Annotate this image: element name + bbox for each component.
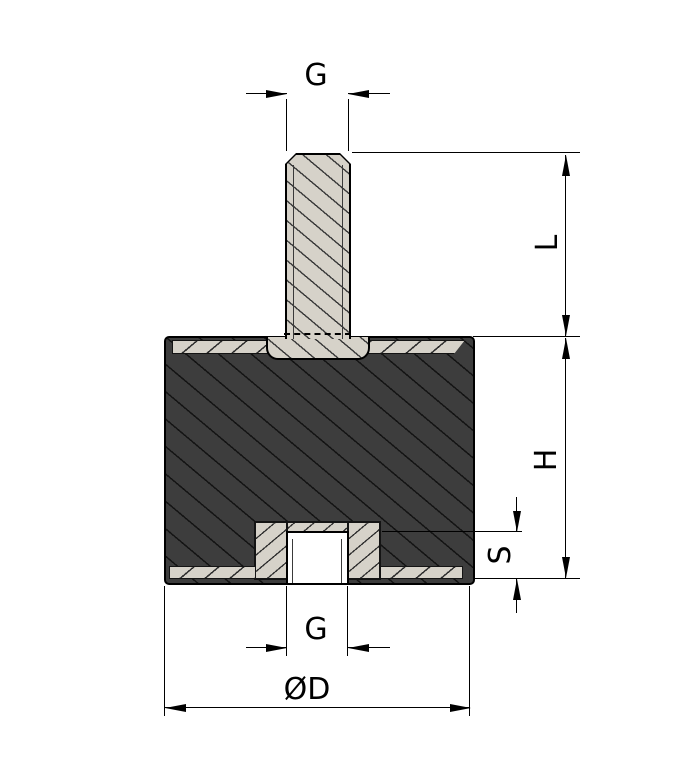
dimension-line: [165, 707, 470, 708]
hole-thread-minor-line-left: [292, 539, 293, 583]
arrowhead: [562, 155, 570, 176]
dimension-line: [565, 338, 566, 578]
stud-thread-minor-line-right: [342, 165, 343, 339]
bottom-plate-left: [169, 566, 256, 579]
arrowhead: [348, 644, 369, 652]
stud-thread-minor-line-left: [293, 165, 294, 339]
extension-line: [469, 586, 470, 716]
dimension-label-outer-diameter: ØD: [284, 675, 331, 705]
arrowhead: [165, 704, 186, 712]
dimension-line: [565, 155, 566, 336]
hole-thread-minor-line-right: [341, 539, 342, 583]
arrowhead: [562, 338, 570, 359]
stud-body-fill: [287, 155, 349, 339]
arrowhead: [266, 90, 287, 98]
extension-line: [473, 578, 580, 579]
dimension-label-body-height: H: [532, 449, 562, 472]
dimension-label-hole-thread: G: [304, 615, 327, 645]
insert-right-leg: [347, 521, 381, 580]
extension-line: [473, 336, 580, 337]
extension-line: [382, 531, 522, 532]
insert-left-leg: [254, 521, 288, 580]
arrowhead: [562, 315, 570, 336]
dimension-label-stud-thread: G: [304, 61, 327, 91]
stud-foot: [266, 337, 370, 360]
arrowhead: [562, 557, 570, 578]
arrowhead: [266, 644, 287, 652]
hidden-edge-dashed-line: [284, 333, 351, 335]
extension-line: [286, 99, 287, 151]
dimension-label-stud-length: L: [533, 235, 563, 252]
threaded-stud: [285, 153, 351, 339]
extension-line: [348, 99, 349, 151]
bottom-plate-right: [380, 566, 463, 579]
extension-line: [164, 586, 165, 716]
arrowhead: [513, 579, 521, 600]
arrowhead: [513, 511, 521, 532]
arrowhead: [348, 90, 369, 98]
extension-line: [352, 152, 580, 153]
arrowhead: [450, 704, 471, 712]
mounting-hole: [286, 531, 349, 583]
technical-drawing-canvas: G L H S G: [0, 0, 700, 780]
dimension-label-thread-depth: S: [486, 545, 516, 564]
